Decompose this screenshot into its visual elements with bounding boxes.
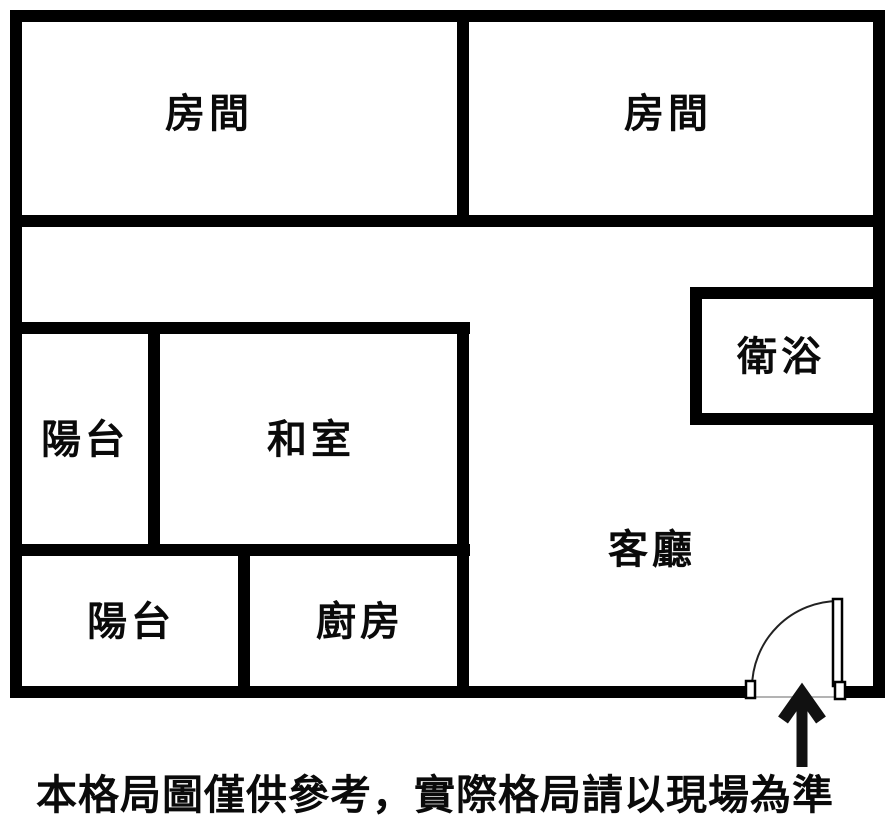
wall-bathroom-bottom [690,413,885,425]
wall-tatami-top [10,322,470,334]
wall-balcony-tatami-divider [148,322,160,556]
wall-outer-right [873,10,885,698]
room-label-bathroom: 衛浴 [737,337,825,377]
disclaimer-caption: 本格局圖僅供參考，實際格局請以現場為準 [30,773,840,818]
room-label-tatami-room: 和室 [267,420,355,460]
wall-outer-bottom-left [10,686,752,698]
floorplan-canvas: 房間 房間 衛浴 陽台 和室 客廳 陽台 廚房 本格局圖僅供參考，實際格局請以現… [0,0,889,835]
room-label-living-room: 客廳 [608,530,696,570]
room-label-bedroom-top-right: 房間 [624,94,712,134]
wall-outer-top [10,10,885,22]
arrow-up-icon [783,693,821,767]
wall-outer-bottom-right [845,686,885,698]
door-swing-arc [752,601,839,688]
wall-bathroom-top [690,287,885,299]
wall-bedrooms-divider [457,10,469,227]
wall-bedrooms-bottom [10,215,885,227]
door-jamb-right [835,682,845,699]
wall-outer-left [10,10,22,698]
wall-balcony-kitchen-divider [238,544,250,698]
room-label-bedroom-top-left: 房間 [165,94,253,134]
room-label-balcony-middle: 陽台 [41,420,129,460]
room-label-kitchen: 廚房 [316,602,404,642]
door-leaf [833,599,842,686]
wall-bathroom-left [690,287,702,425]
room-label-balcony-bottom: 陽台 [87,602,175,642]
wall-main-vertical [457,322,469,698]
